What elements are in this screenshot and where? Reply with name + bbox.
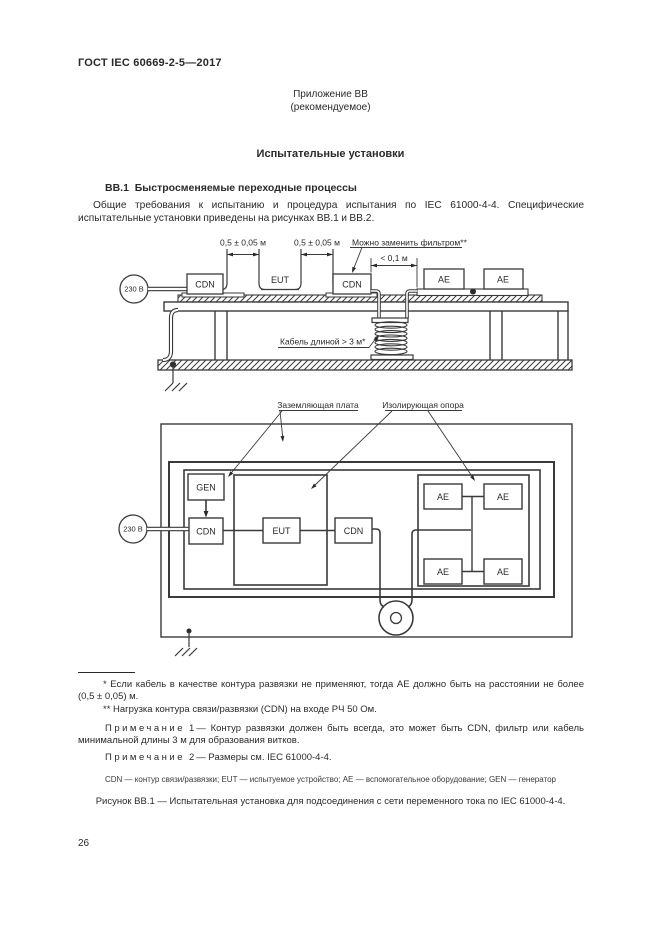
- note-2-text: — Размеры см. IEC 61000-4-4.: [196, 752, 331, 763]
- figure1-side-view-diagram: 230 В CDN EUT CDN AE AE 0,5 ± 0,05 м 0,5…: [0, 230, 661, 396]
- note-2-number: 2: [185, 752, 196, 763]
- figure2-insulating-support-label: Изолирующая опора: [382, 400, 464, 410]
- note-2: Примечание2— Размеры см. IEC 61000-4-4.: [78, 752, 584, 764]
- cable-loop-right: [296, 249, 339, 290]
- figure2-ae-br-label: AE: [497, 567, 509, 577]
- figure1-ae-right-label: AE: [497, 275, 509, 285]
- figure1-cdn-left-label: CDN: [195, 280, 215, 290]
- figure1-dim-right-label: 0,5 ± 0,05 м: [294, 238, 340, 248]
- tabletop-board: [164, 302, 568, 311]
- figure1-ae-left-label: AE: [438, 275, 450, 285]
- figure1-cdn-right-label: CDN: [342, 280, 362, 290]
- page-number: 26: [78, 838, 89, 849]
- floor-ground-reference-plane: [158, 360, 572, 370]
- dimension-left: [227, 253, 259, 257]
- figure2-ae-bl-label: AE: [437, 567, 449, 577]
- figure1-filter-note: Можно заменить фильтром**: [352, 238, 468, 248]
- page-title: Испытательные установки: [0, 148, 661, 160]
- document-page: ГОСТ IEC 60669-2-5—2017 Приложение ВВ (р…: [0, 0, 661, 935]
- ground-plate-label-leaders: [228, 411, 358, 478]
- figure1-source-label: 230 В: [124, 285, 144, 294]
- figure2-ground-plate-label: Заземляющая плата: [277, 400, 359, 410]
- document-header: ГОСТ IEC 60669-2-5—2017: [78, 57, 222, 69]
- footnote-1: * Если кабель в качестве контура развязк…: [78, 679, 584, 703]
- figure1-dim-left-label: 0,5 ± 0,05 м: [220, 238, 266, 248]
- figure-caption: Рисунок ВВ.1 — Испытательная установка д…: [0, 796, 661, 807]
- figure-legend: CDN — контур связи/развязки; EUT — испыт…: [0, 775, 661, 784]
- insulating-support-label-leaders: [311, 411, 475, 490]
- coiled-cable: [379, 601, 413, 635]
- footnote-2: ** Нагрузка контура связи/развязки (CDN)…: [78, 704, 584, 716]
- note-1: Примечание1— Контур развязки должен быть…: [78, 723, 584, 747]
- dimension-right: [301, 253, 333, 257]
- bond-point-dot: [470, 289, 476, 295]
- note-2-word: Примечание: [105, 752, 185, 763]
- figure2-ae-tr-label: AE: [497, 492, 509, 502]
- body-paragraph: Общие требования к испытанию и процедура…: [78, 199, 584, 225]
- ground-symbol: [175, 629, 197, 657]
- table-to-floor-bond-cable: [163, 310, 178, 360]
- gen-to-cdn-arrow: [204, 500, 209, 518]
- figure1-dim-ae-label: < 0,1 м: [380, 253, 408, 263]
- figure1-eut-label: EUT: [271, 275, 290, 285]
- figure2-ae-tl-label: AE: [437, 492, 449, 502]
- figure2-gen-label: GEN: [196, 483, 216, 493]
- annex-label: Приложение ВВ: [0, 89, 661, 100]
- figure2-eut-label: EUT: [273, 526, 292, 536]
- figure1-cable-note: Кабель длиной > 3 м*: [280, 337, 366, 347]
- ae-connector-lines: [462, 497, 484, 572]
- note-1-word: Примечание: [105, 723, 185, 734]
- note-1-number: 1: [185, 723, 196, 734]
- figure2-cdn-right-label: CDN: [344, 526, 364, 536]
- section-heading: ВВ.1 Быстросменяемые переходные процессы: [105, 182, 357, 194]
- figure2-cdn-left-label: CDN: [196, 527, 216, 537]
- wire-cdn-to-coil: [372, 529, 384, 607]
- figure2-top-view-diagram: Заземляющая плата Изолирующая опора 230 …: [0, 398, 661, 662]
- figure2-source-label: 230 В: [123, 525, 143, 534]
- cable-loop-left: [222, 249, 265, 290]
- annex-type: (рекомендуемое): [0, 102, 661, 113]
- footnote-rule: [78, 672, 135, 673]
